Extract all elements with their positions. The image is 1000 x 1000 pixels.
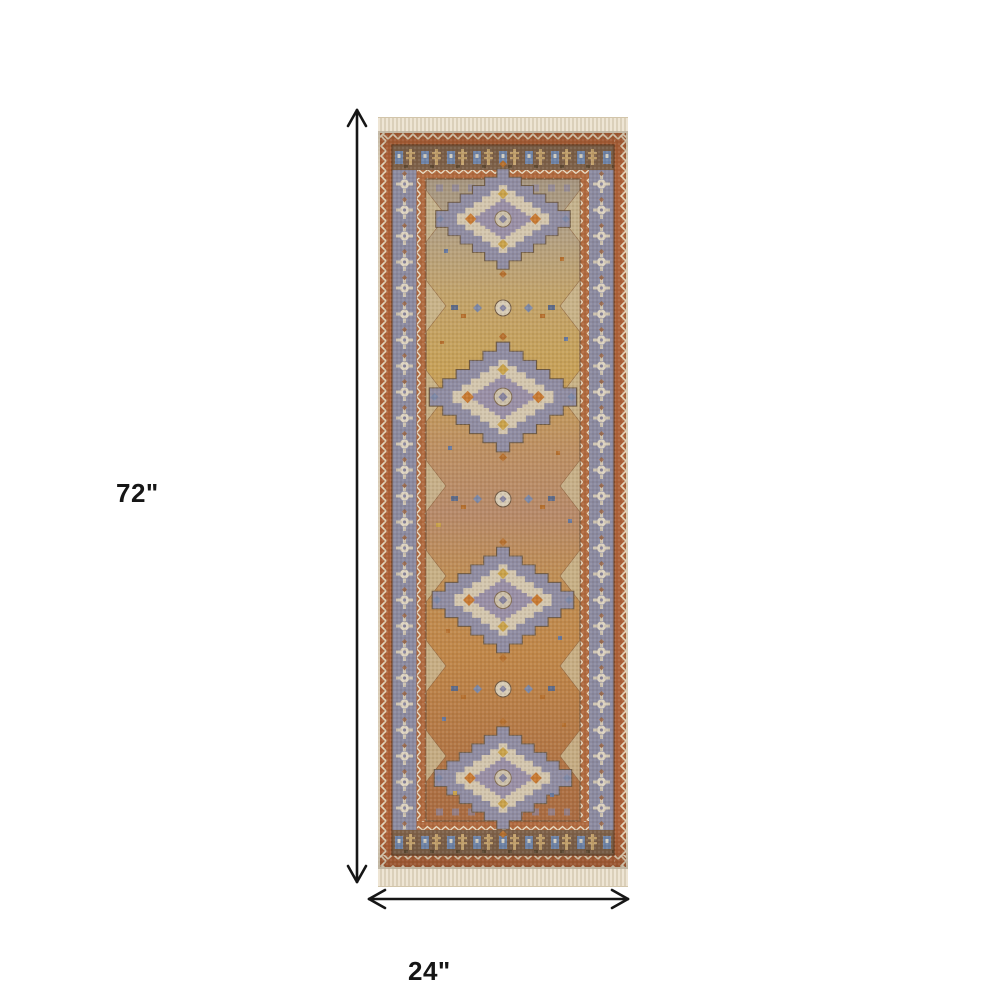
rug-body <box>378 131 628 869</box>
rug-dimension-diagram: 72" 24" <box>0 0 1000 1000</box>
rug-top-fringe <box>378 117 628 132</box>
height-dimension-arrow <box>344 104 370 888</box>
width-label: 24" <box>408 956 451 987</box>
height-label: 72" <box>116 478 159 509</box>
rug-bottom-fringe <box>378 869 628 887</box>
width-dimension-arrow <box>362 886 638 912</box>
rug-image <box>378 117 628 886</box>
